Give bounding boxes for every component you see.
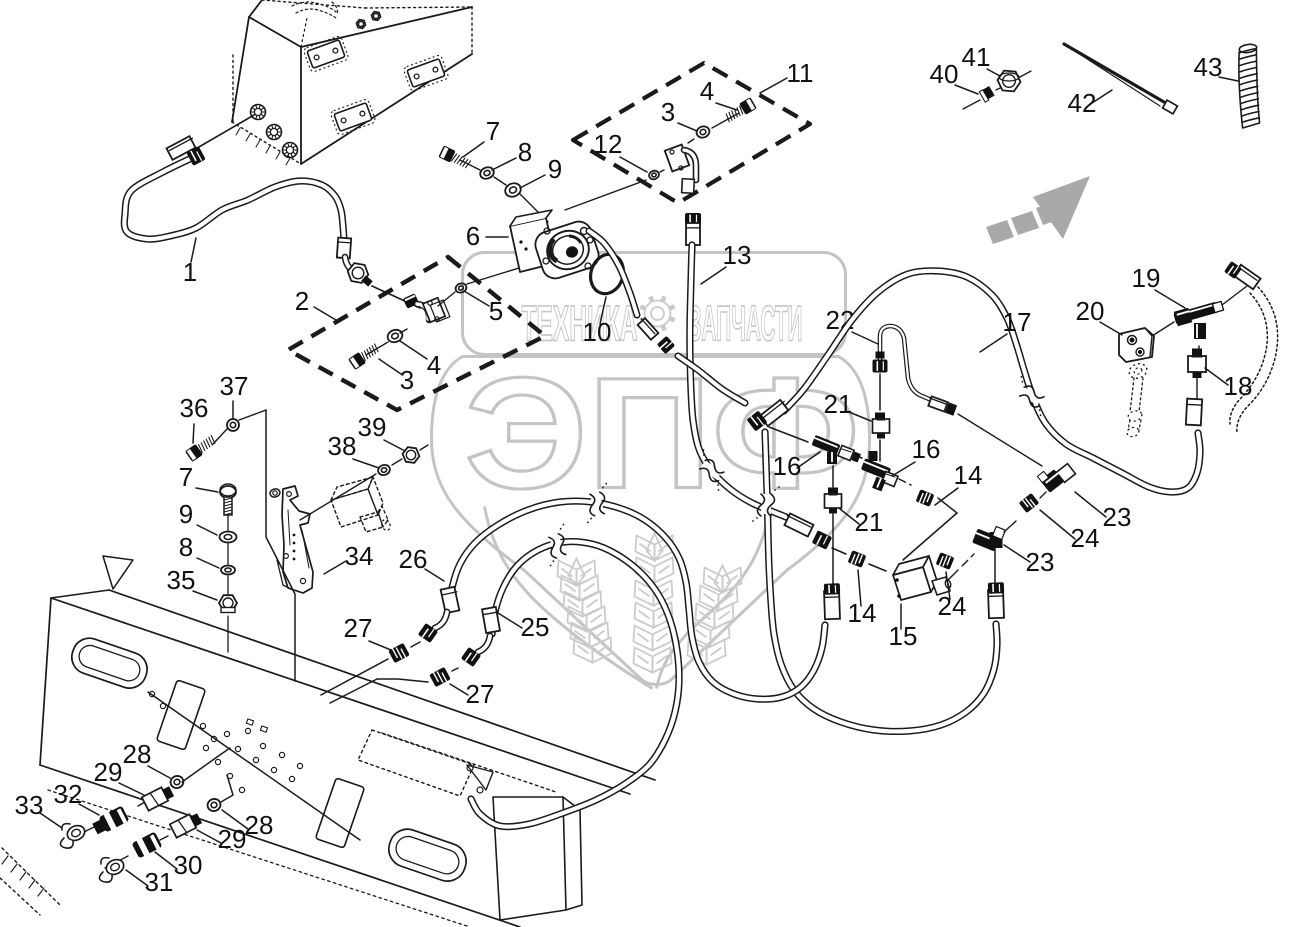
svg-text:2: 2: [295, 286, 309, 316]
svg-text:28: 28: [123, 739, 152, 769]
svg-text:29: 29: [94, 757, 123, 787]
svg-text:ЗАПЧАСТИ: ЗАПЧАСТИ: [689, 296, 803, 352]
svg-text:14: 14: [848, 598, 877, 628]
svg-text:6: 6: [466, 221, 480, 251]
svg-text:ЭПФ: ЭПФ: [465, 346, 860, 522]
svg-text:14: 14: [954, 460, 983, 490]
svg-text:3: 3: [400, 365, 414, 395]
svg-text:15: 15: [889, 621, 918, 651]
svg-text:18: 18: [1224, 371, 1253, 401]
svg-text:12: 12: [594, 129, 623, 159]
svg-text:9: 9: [179, 499, 193, 529]
svg-text:7: 7: [179, 462, 193, 492]
svg-text:41: 41: [962, 42, 991, 72]
svg-text:8: 8: [518, 137, 532, 167]
svg-text:4: 4: [700, 76, 714, 106]
svg-text:31: 31: [145, 867, 174, 897]
svg-text:33: 33: [15, 790, 44, 820]
svg-text:19: 19: [1132, 263, 1161, 293]
svg-text:16: 16: [912, 434, 941, 464]
svg-text:4: 4: [427, 350, 441, 380]
svg-text:5: 5: [489, 296, 503, 326]
svg-text:13: 13: [723, 240, 752, 270]
svg-text:40: 40: [930, 59, 959, 89]
svg-text:21: 21: [855, 507, 884, 537]
svg-text:32: 32: [54, 779, 83, 809]
svg-text:35: 35: [167, 565, 196, 595]
svg-text:9: 9: [548, 154, 562, 184]
svg-text:11: 11: [787, 58, 814, 88]
svg-text:37: 37: [220, 371, 249, 401]
svg-text:1: 1: [183, 257, 197, 287]
svg-text:27: 27: [466, 679, 495, 709]
svg-text:24: 24: [938, 591, 967, 621]
svg-text:30: 30: [174, 850, 203, 880]
svg-text:17: 17: [1003, 307, 1032, 337]
svg-text:28: 28: [245, 810, 274, 840]
svg-text:16: 16: [773, 451, 802, 481]
svg-text:3: 3: [661, 97, 675, 127]
svg-text:36: 36: [180, 393, 209, 423]
svg-text:23: 23: [1103, 502, 1132, 532]
svg-text:10: 10: [583, 317, 612, 347]
svg-text:43: 43: [1194, 52, 1223, 82]
svg-text:26: 26: [399, 544, 428, 574]
svg-text:38: 38: [328, 431, 357, 461]
svg-text:21: 21: [824, 389, 853, 419]
svg-text:ТЕХНИКА: ТЕХНИКА: [522, 296, 638, 352]
svg-text:25: 25: [521, 612, 550, 642]
svg-text:34: 34: [345, 541, 374, 571]
svg-text:39: 39: [358, 412, 387, 442]
svg-text:8: 8: [179, 532, 193, 562]
svg-text:7: 7: [486, 116, 500, 146]
svg-text:29: 29: [218, 824, 247, 854]
svg-text:27: 27: [344, 613, 373, 643]
